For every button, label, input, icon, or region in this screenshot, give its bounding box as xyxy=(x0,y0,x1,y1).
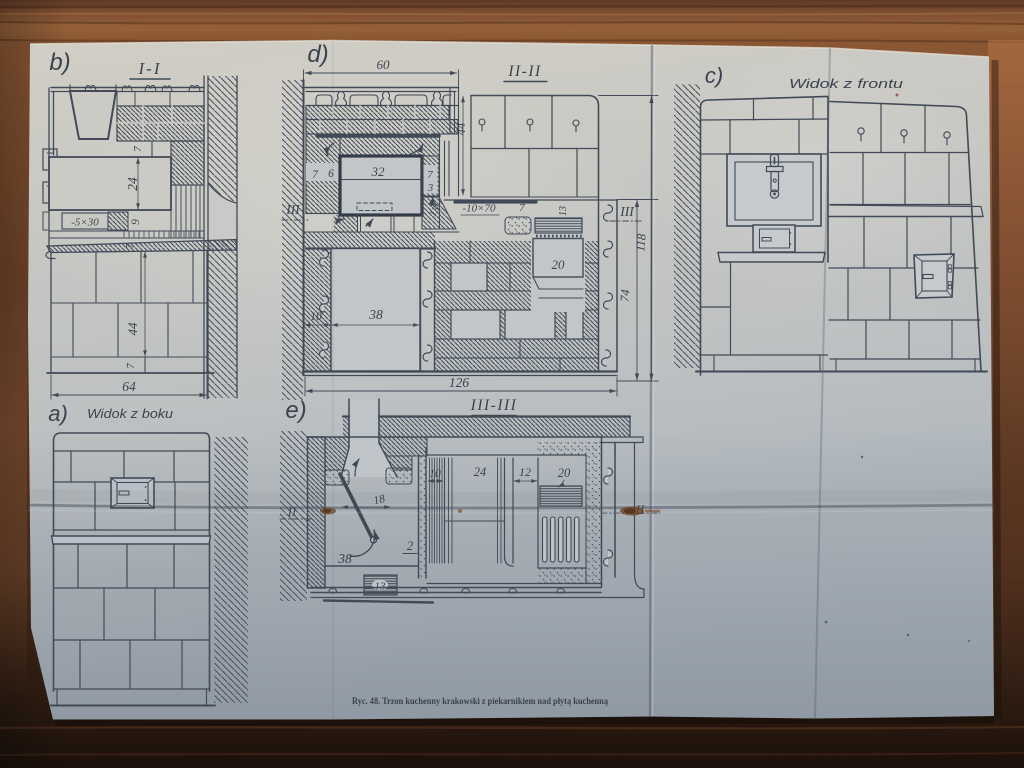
svg-text:-10×70: -10×70 xyxy=(462,203,496,215)
svg-text:13: 13 xyxy=(375,581,387,593)
svg-text:32: 32 xyxy=(371,164,386,179)
svg-text:74: 74 xyxy=(617,289,632,303)
svg-text:118: 118 xyxy=(633,232,649,252)
svg-text:-5×30: -5×30 xyxy=(71,217,99,229)
svg-text:38: 38 xyxy=(337,551,352,566)
svg-text:44: 44 xyxy=(125,322,140,336)
svg-text:a): a) xyxy=(48,401,68,426)
svg-text:II: II xyxy=(287,504,297,519)
svg-text:I-I: I-I xyxy=(138,59,162,78)
svg-text:II-II: II-II xyxy=(507,63,541,80)
svg-text:b): b) xyxy=(49,49,70,76)
svg-text:20: 20 xyxy=(552,257,566,272)
svg-text:III: III xyxy=(285,202,301,217)
svg-text:7: 7 xyxy=(132,146,144,152)
svg-text:Widok z boku: Widok z boku xyxy=(87,406,173,421)
svg-text:d): d) xyxy=(307,41,328,68)
svg-text:c): c) xyxy=(705,63,723,88)
svg-text:60: 60 xyxy=(377,57,391,72)
svg-text:126: 126 xyxy=(449,375,470,390)
svg-text:Widok z frontu: Widok z frontu xyxy=(789,76,903,91)
svg-text:7: 7 xyxy=(427,169,433,181)
svg-text:20: 20 xyxy=(558,466,571,480)
svg-text:10: 10 xyxy=(310,311,322,323)
svg-text:24: 24 xyxy=(474,465,487,479)
svg-text:7: 7 xyxy=(519,202,525,214)
svg-text:13: 13 xyxy=(558,206,569,216)
svg-text:7: 7 xyxy=(125,363,137,369)
svg-text:7: 7 xyxy=(124,243,136,249)
svg-text:10: 10 xyxy=(429,468,441,480)
svg-text:12: 12 xyxy=(519,465,531,479)
svg-text:38: 38 xyxy=(368,307,383,322)
svg-text:2: 2 xyxy=(407,539,413,553)
svg-text:Ryc. 48. Trzon kuchenny krakow: Ryc. 48. Trzon kuchenny krakowski z piek… xyxy=(352,697,608,707)
svg-text:III-III: III-III xyxy=(470,397,518,414)
svg-text:44: 44 xyxy=(454,123,468,136)
svg-text:9: 9 xyxy=(130,219,142,225)
svg-text:e): e) xyxy=(285,397,306,424)
svg-text:64: 64 xyxy=(122,379,136,394)
svg-text:III: III xyxy=(619,204,635,219)
svg-text:3: 3 xyxy=(427,182,434,194)
